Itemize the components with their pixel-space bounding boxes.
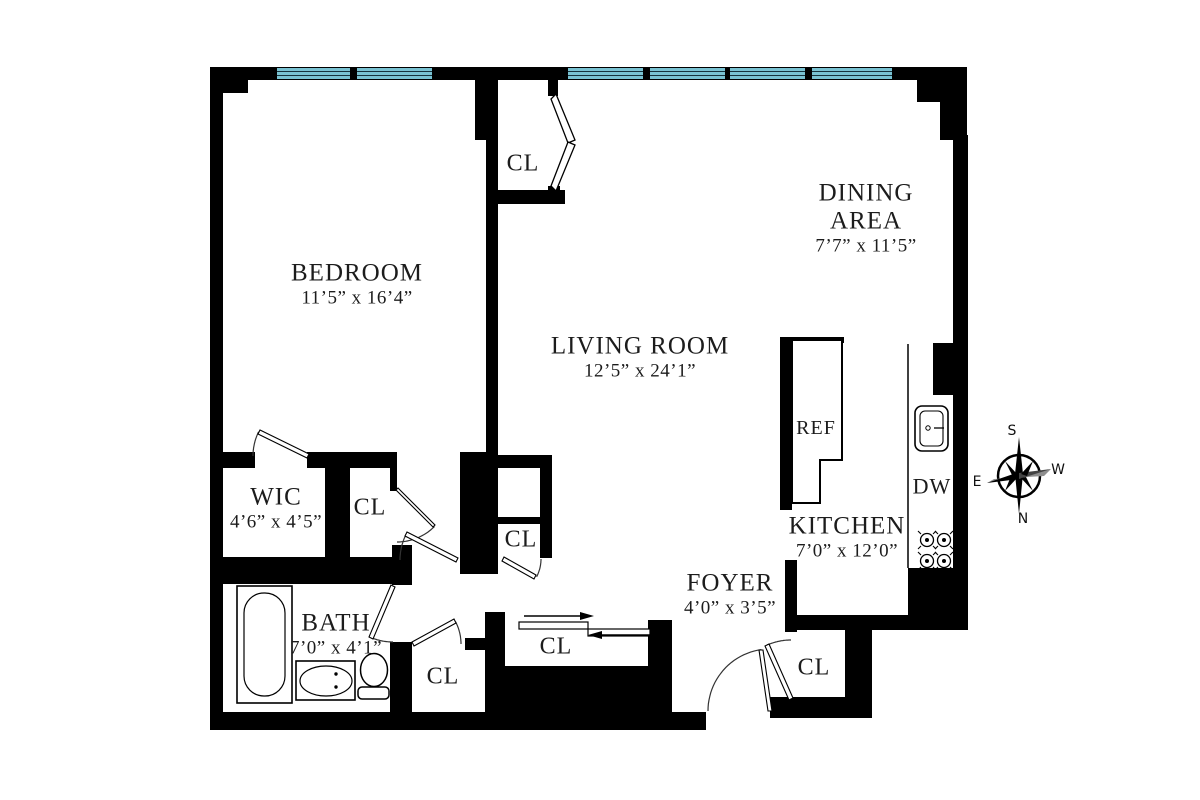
compass-w: W [1051, 462, 1065, 478]
room-dims: 7’0” x 12’0” [789, 540, 906, 561]
entry-door [759, 650, 772, 711]
closet-label: CL [798, 655, 831, 682]
dishwasher-label: DW [913, 475, 952, 500]
fixtures-layer [0, 0, 1200, 800]
room-dims: 11’5” x 16’4” [291, 287, 423, 308]
sink-bowl [300, 666, 352, 696]
room-label-wic: WIC 4’6” x 4’5” [230, 483, 322, 532]
sliding-doors [519, 612, 650, 639]
compass-e: E [973, 474, 982, 490]
room-dims: 12’5” x 24’1” [551, 360, 729, 381]
closet-label: CL [427, 664, 460, 691]
room-dims: 4’0” x 3’5” [684, 597, 776, 618]
hall-closet-door [396, 488, 435, 527]
bathtub [237, 586, 292, 703]
closet-label: CL [354, 495, 387, 522]
room-dims: 7’7” x 11’5” [786, 235, 946, 256]
closet-label: CL [505, 527, 538, 554]
room-label-bedroom: BEDROOM 11’5” x 16’4” [291, 259, 423, 308]
room-name: BEDROOM [291, 259, 423, 287]
room-dims: 4’6” x 4’5” [230, 511, 322, 532]
wic-door [258, 430, 309, 458]
bifold-door [551, 94, 575, 191]
room-label-living-room: LIVING ROOM 12’5” x 24’1” [551, 332, 729, 381]
room-name: LIVING ROOM [551, 332, 729, 360]
stove-burners [918, 531, 953, 570]
compass-rose [987, 437, 1051, 514]
room-dims: 7’0” x 4’1” [290, 637, 382, 658]
slide-arrow-right [580, 612, 594, 620]
room-name: FOYER [684, 569, 776, 597]
room-label-bath: BATH 7’0” x 4’1” [290, 609, 382, 658]
middle-closet-door [502, 557, 536, 579]
floor-plan: BEDROOM 11’5” x 16’4” LIVING ROOM 12’5” … [0, 0, 1200, 800]
compass-n: N [1018, 511, 1028, 527]
closet-label: CL [540, 634, 573, 661]
bedroom-hall-door [405, 532, 458, 562]
closet-label: CL [507, 151, 540, 178]
refrigerator-label: REF [796, 417, 836, 439]
toilet-tank [358, 687, 389, 699]
room-name: BATH [290, 609, 382, 637]
compass-s: S [1008, 423, 1017, 439]
room-name: WIC [230, 483, 322, 511]
room-name: DINING AREA [806, 179, 926, 235]
room-name: KITCHEN [789, 512, 906, 540]
room-label-foyer: FOYER 4’0” x 3’5” [684, 569, 776, 618]
room-label-dining-area: DINING AREA 7’7” x 11’5” [786, 179, 946, 256]
bottom-closet-door [412, 619, 456, 646]
room-label-kitchen: KITCHEN 7’0” x 12’0” [789, 512, 906, 561]
